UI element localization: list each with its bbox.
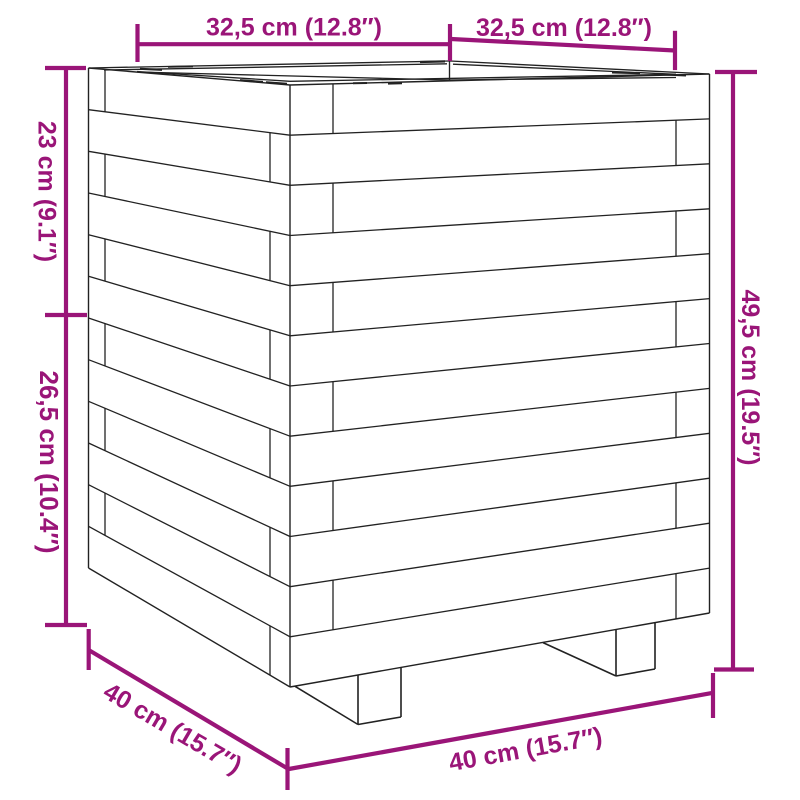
svg-text:49,5 cm (19.5″): 49,5 cm (19.5″): [736, 290, 764, 466]
svg-text:23 cm (9.1″): 23 cm (9.1″): [33, 121, 61, 262]
svg-text:32,5 cm (12.8″): 32,5 cm (12.8″): [206, 14, 382, 42]
svg-text:26,5 cm (10.4″): 26,5 cm (10.4″): [34, 370, 64, 553]
svg-text:32,5 cm (12.8″): 32,5 cm (12.8″): [476, 14, 652, 42]
